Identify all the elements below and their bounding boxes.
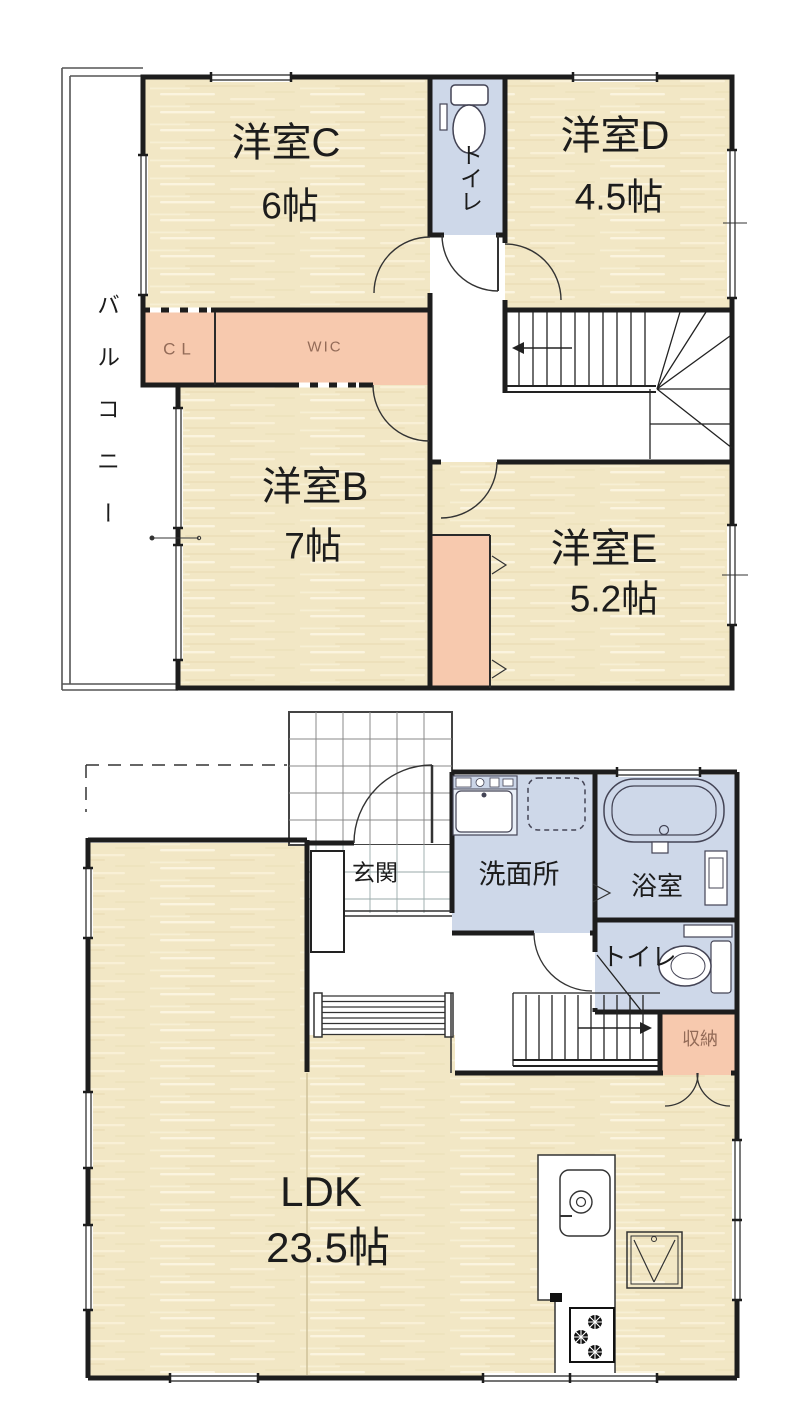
room-c-label: 洋室C [232,123,341,163]
door-arc-toilet-2f [442,235,498,291]
washroom-label: 洗面所 [479,862,560,889]
bathroom-label: 浴室 [631,873,683,899]
closet-wic-label: WIC [307,340,342,355]
room-e-closet-floor [432,535,490,688]
room-e-size: 5.2帖 [570,581,658,618]
stair-direction-arrow-2f [512,342,524,354]
stair-direction-arrow-1f [640,1022,652,1034]
room-b-label: 洋室B [262,467,369,507]
room-e-label: 洋室E [551,529,658,569]
kitchen-sink-icon [560,1170,610,1236]
floorplan-canvas: 洋室C 6帖 トイレ 洋室D 4.5帖 CL WIC バルコニー 洋室B 7帖 … [0,0,799,1418]
room-d-size: 4.5帖 [575,179,663,216]
ldk-size: 23.5帖 [266,1227,390,1269]
ldk-label: LDK [280,1171,362,1213]
entrance-label: 玄関 [352,862,398,885]
eave-dashed-line [86,765,287,812]
storage-label: 収納 [682,1030,718,1048]
stairs-2f [506,312,732,459]
kitchen-wall-stub [550,1293,562,1302]
door-arc-washroom [534,933,592,991]
entrance-porch [289,712,452,845]
floor1-plan [83,712,742,1383]
closet-cl-label: CL [163,341,197,358]
ldk-floor-left [88,843,307,1378]
shoe-cabinet [311,851,344,952]
toilet-1f-label: トイレ [601,946,676,971]
floorplan-drawing [0,0,799,1418]
stove-icon [570,1308,614,1362]
balcony-label: バルコニー [95,293,118,553]
room-b-size: 7帖 [284,528,342,565]
room-c-size: 6帖 [261,188,319,225]
washbasin-unit [453,776,517,835]
toilet-2f-label: トイレ [458,144,481,213]
room-d-label: 洋室D [561,116,670,156]
entrance-step-line [344,911,452,916]
